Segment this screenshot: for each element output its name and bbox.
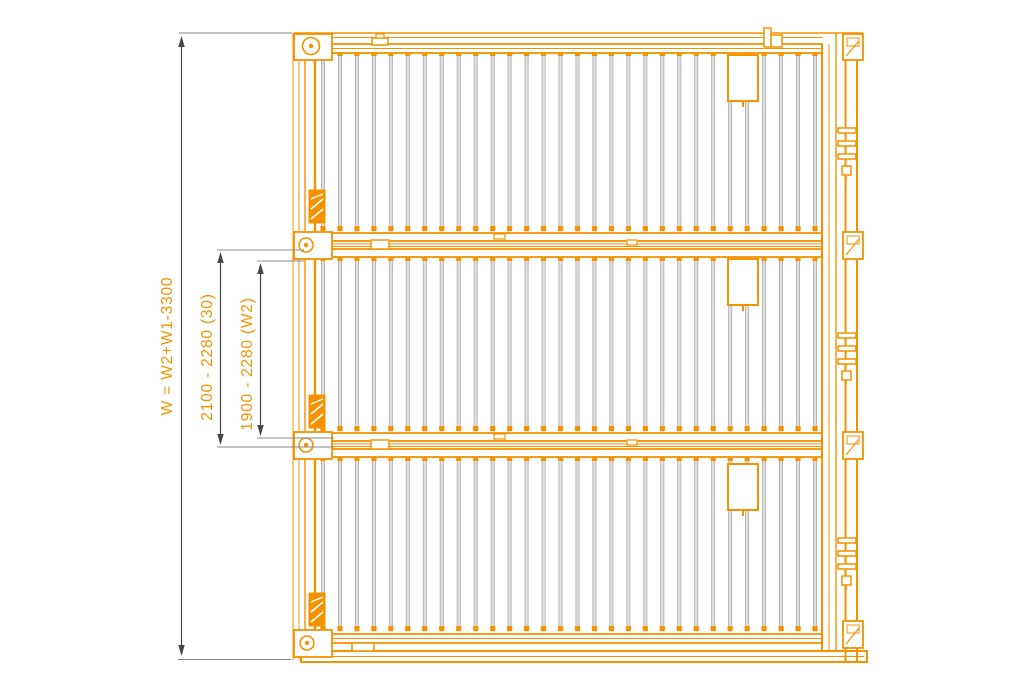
container-technical-drawing (0, 0, 1024, 683)
hinge-ladders (838, 128, 856, 590)
dimension-overall-width (178, 33, 292, 660)
dimension-label-panel-outer-width: 2100 - 2280 (30) (199, 257, 219, 457)
dimension-label-overall-width: W = W2+W1-3300 (159, 236, 179, 456)
dimension-label-panel-inner-width: 1900 - 2280 (W2) (239, 264, 259, 464)
drawing-canvas: W = W2+W1-3300 2100 - 2280 (30) 1900 - 2… (0, 0, 1024, 683)
clamps-latches (352, 28, 782, 651)
side-rails (293, 33, 857, 662)
